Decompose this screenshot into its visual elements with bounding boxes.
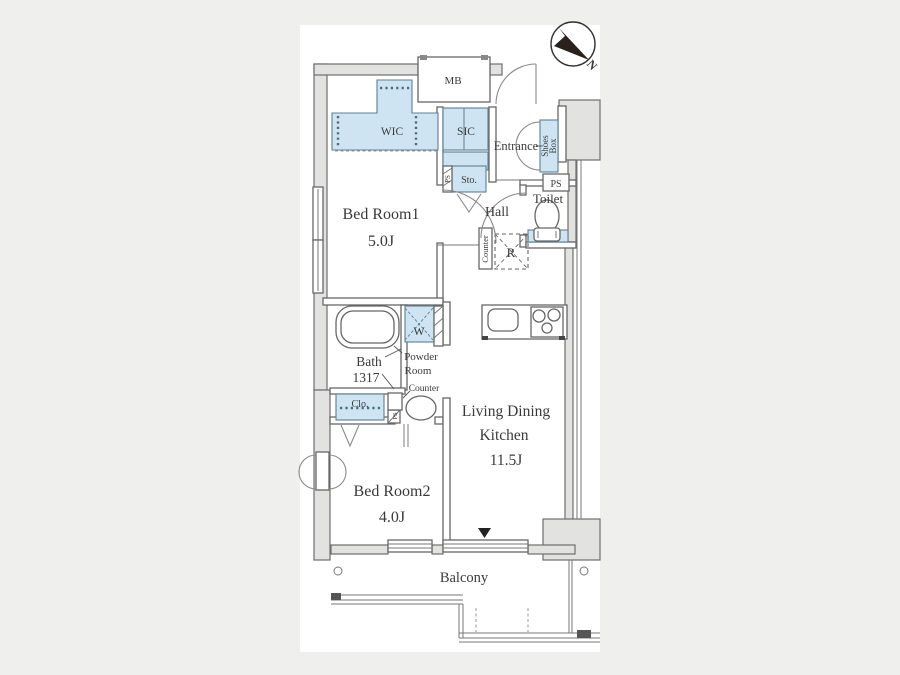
bedroom2-balcony-window — [388, 540, 432, 552]
label-entrance: Entrance — [494, 139, 539, 153]
label-ps-basin: PS — [392, 412, 399, 420]
toilet-fixture — [534, 200, 560, 241]
label-bedroom1-name: Bed Room1 — [343, 206, 420, 223]
label-mb: MB — [444, 75, 461, 87]
bedroom2-window — [316, 452, 329, 490]
label-ldk-1: Living Dining — [462, 403, 551, 420]
floor-plan-svg: N MB WIC SIC Entrance Shoes Box PS PS St… — [0, 0, 900, 675]
label-counter-hall: Counter — [480, 235, 490, 263]
label-balcony: Balcony — [440, 570, 489, 586]
label-bedroom1-size: 5.0J — [368, 233, 394, 250]
bathtub — [336, 306, 399, 348]
label-toilet: Toilet — [533, 191, 564, 206]
label-bath-size: 1317 — [353, 370, 380, 385]
label-powder-1: Powder — [404, 351, 438, 363]
label-sic: SIC — [457, 126, 475, 138]
label-bedroom2-size: 4.0J — [379, 509, 405, 526]
label-shoes-box-2: Box — [548, 138, 558, 154]
label-sto: Sto. — [461, 175, 477, 186]
label-fridge: R — [507, 245, 516, 260]
kitchen-counter — [482, 305, 567, 340]
floor-plan-page: N MB WIC SIC Entrance Shoes Box PS PS St… — [0, 0, 900, 675]
label-ps: PS — [550, 179, 561, 190]
label-bath: Bath — [356, 354, 382, 369]
ldk-balcony-window — [443, 540, 528, 552]
label-hall: Hall — [485, 205, 509, 220]
label-ldk-2: Kitchen — [479, 427, 528, 444]
label-bedroom2-name: Bed Room2 — [354, 483, 431, 500]
label-clo: Clo. — [352, 399, 369, 410]
label-wic: WIC — [381, 126, 404, 138]
label-ps-rotated: PS — [444, 175, 452, 183]
label-powder-2: Room — [405, 365, 432, 377]
label-ldk-size: 11.5J — [490, 452, 523, 469]
label-washer: W — [413, 324, 425, 338]
label-counter-powder: Counter — [409, 384, 440, 394]
